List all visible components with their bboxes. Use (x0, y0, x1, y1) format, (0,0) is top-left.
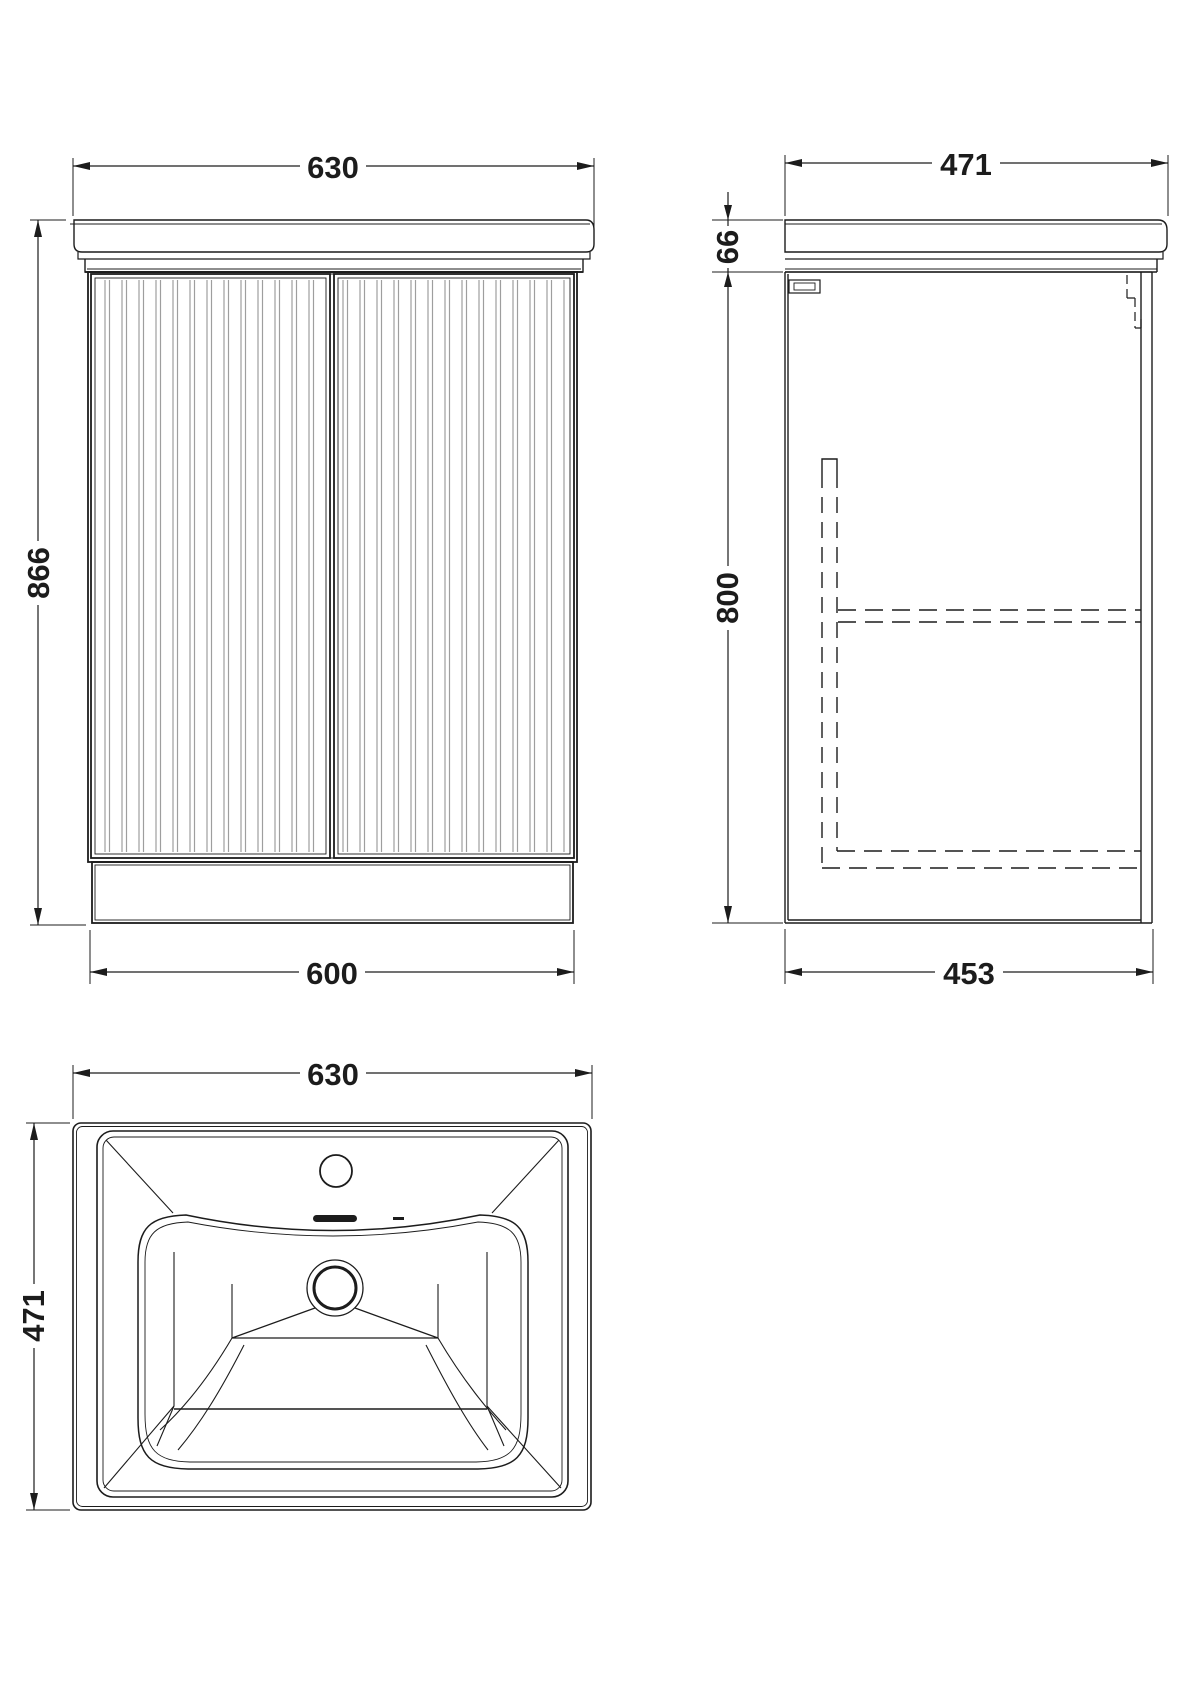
fluted-door-left (91, 274, 330, 858)
side-cabinet (785, 272, 1152, 923)
dimension-side-cabinet-height: 800 (710, 566, 783, 923)
basin-interior-contours (157, 1252, 506, 1450)
tap-hole (320, 1155, 352, 1187)
side-worktop (785, 220, 1167, 272)
dimension-side-top-depth: 471 (785, 146, 1168, 216)
dim-front-height-value: 866 (21, 547, 56, 599)
dim-side-cabinet-height-value: 800 (710, 572, 745, 624)
dimension-basin-width: 630 (73, 1056, 592, 1119)
overflow-slot (313, 1215, 404, 1222)
basin-plan-view: 630 471 (16, 1056, 592, 1510)
front-worktop (70, 220, 594, 272)
technical-drawing-page: 630 866 600 (0, 0, 1190, 1684)
front-plinth (92, 862, 573, 923)
dimension-side-bottom-depth: 453 (785, 929, 1153, 991)
side-door-hidden-outline (822, 459, 1141, 868)
dim-basin-depth-value: 471 (16, 1290, 51, 1342)
dim-side-worktop-height-value: 66 (710, 230, 745, 264)
basin-bowl-outline (138, 1215, 528, 1469)
dim-side-top-depth-value: 471 (940, 147, 992, 182)
dimension-side-worktop-height: 66 (710, 192, 783, 923)
dimension-front-bottom-width: 600 (90, 930, 574, 991)
drain-assembly (232, 1260, 438, 1338)
basin-corner-diagonals (104, 1140, 561, 1488)
side-view: 471 66 800 453 (710, 146, 1168, 991)
dimension-basin-depth: 471 (16, 1123, 70, 1510)
side-fixing-plate (789, 280, 820, 293)
front-view: 630 866 600 (21, 149, 594, 991)
dim-side-bottom-depth-value: 453 (943, 956, 995, 991)
fluted-door-right (334, 274, 574, 858)
side-shelf-hidden (838, 610, 1141, 622)
dim-front-top-width-value: 630 (307, 150, 359, 185)
dim-basin-width-value: 630 (307, 1057, 359, 1092)
basin-outer-edge (73, 1123, 591, 1510)
dim-front-bottom-width-value: 600 (306, 956, 358, 991)
dimension-front-top-width: 630 (73, 149, 594, 246)
side-hinge-hidden-detail (1127, 275, 1141, 328)
vanity-technical-drawing: 630 866 600 (0, 0, 1190, 1684)
dimension-front-height: 866 (21, 220, 86, 925)
